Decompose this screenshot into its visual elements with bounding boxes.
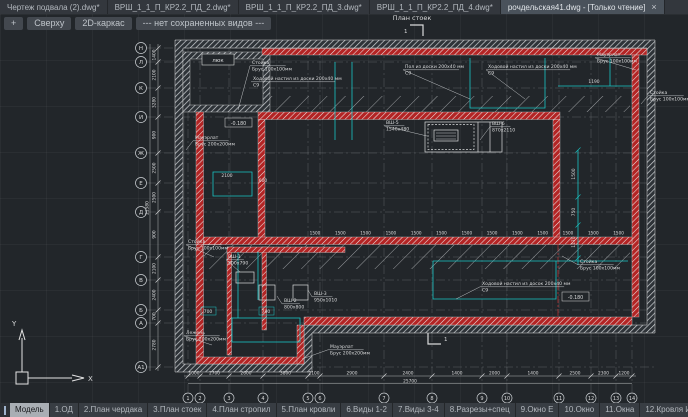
axis-bubble-label: 3 [227, 396, 230, 402]
axis-bubble-label: А [139, 321, 143, 327]
ucs-y-label: Y [11, 320, 17, 328]
stud-spacing-dim: 1500 [411, 231, 422, 236]
document-tab[interactable]: ВРШ_1_1_П_КР2.2_ПД_4.dwg* [370, 0, 501, 14]
annotation-text: Брус 100x100мм [188, 245, 228, 251]
annotation-text: Мауэрлат [330, 344, 354, 350]
axis-bubble-label: 1 [186, 396, 189, 402]
axis-dim-value: 3280 [152, 97, 158, 108]
shaft-detail-blocks [236, 122, 502, 300]
layout-tab[interactable]: 6.Виды 1-2 [341, 403, 393, 417]
axis-bubble-label: В [139, 278, 143, 284]
viewport-add-button[interactable]: + [4, 17, 23, 30]
annotation-text: Мауэрлат [597, 52, 621, 58]
axis-bubble-label: А1 [137, 365, 144, 371]
document-tab-bar: Чертеж подвала (2).dwg*ВРШ_1_1_П_КР2.2_П… [0, 0, 688, 14]
axis-bubble-label: Д [139, 210, 144, 216]
layout-tab[interactable]: 9.Окно Е [516, 403, 560, 417]
stud-spacing-dim: 1500 [386, 231, 397, 236]
detail-dim-value: 2100 [221, 173, 232, 179]
annotation-callout: ВШ-3950x1010 [308, 290, 337, 303]
layout-list-icon[interactable] [4, 406, 6, 415]
annotation-text: Брус 100x100мм [597, 58, 637, 64]
annotation-text: С9 [405, 70, 411, 76]
axis-dim-value: 3800 [280, 371, 291, 377]
annotation-text: Стойка [580, 258, 597, 265]
layout-tab[interactable]: 1.ОД [50, 403, 79, 417]
axis-bubble-label: Е [139, 181, 143, 187]
axis-dim-value: 2100 [152, 263, 158, 274]
axis-dim-value: 1000 [189, 371, 200, 377]
axis-bubble-label: 4 [261, 396, 264, 402]
axis-bubble-label: Б [139, 308, 143, 314]
annotation-text: Брус 100x100мм [650, 96, 688, 102]
annotation-text: 500x790 [228, 260, 248, 266]
axis-dim-value: 2100 [152, 69, 158, 80]
axis-dim-value: 2000 [489, 371, 500, 377]
stud-spacing-dim: 1500 [613, 231, 624, 236]
stud-spacing-dim: 1500 [537, 231, 548, 236]
detail-dim-value: 700 [204, 309, 213, 315]
annotation-text: С9 [488, 70, 494, 76]
stud-spacing-dim: 1500 [512, 231, 523, 236]
document-tab-active[interactable]: рочдельская41.dwg - [Только чтение]× [501, 0, 665, 14]
axis-bubble-label: 10 [504, 396, 510, 402]
floor-plan-drawing: люк -0.180 -0.180 План стоек 1 1 НЛКИЖЕД… [0, 14, 688, 403]
axis-total-dim: 25700 [403, 378, 417, 384]
layout-tab[interactable]: 8.Разрезы+спец [445, 403, 516, 417]
drawing-title: План стоек [393, 14, 432, 22]
axis-dim-value: 2900 [347, 371, 358, 377]
annotation-text: Брус 200x200мм [330, 350, 370, 356]
viewport-controls: + Сверху 2D-каркас --- нет сохраненных в… [4, 17, 271, 30]
axis-dim-value: 2780 [152, 339, 158, 350]
axis-dim-value: 2400 [152, 289, 158, 300]
level-mark-value: -0.180 [568, 295, 583, 301]
annotation-text: Стойка [650, 89, 667, 96]
axis-dim-value: 2500 [152, 192, 158, 203]
stud-spacing-dim: 1500 [461, 231, 472, 236]
detail-dim-value: 1500 [571, 168, 577, 179]
axis-bubble-label: 8 [430, 396, 433, 402]
annotation-leader [403, 70, 470, 99]
detail-dim-value: 700 [262, 309, 271, 315]
axis-total-dim: 21580 [145, 201, 151, 215]
annotation-text: С9 [253, 82, 259, 88]
annotation-text: С9 [482, 287, 488, 293]
stud-spacing-dim: 1500 [360, 231, 371, 236]
annotation-callout: ВШ-51540x480 [384, 120, 427, 136]
section-marks [410, 25, 441, 344]
annotation-text: 950x1010 [314, 297, 337, 303]
level-marks: -0.180 -0.180 [225, 118, 589, 301]
annotation-text: Пол из доски 200x40 мм [405, 64, 465, 70]
axis-dim-value: 1400 [152, 49, 158, 60]
layout-tab[interactable]: 7.Виды 3-4 [393, 403, 445, 417]
stud-spacing-dim: 1500 [563, 231, 574, 236]
annotation-leader [480, 127, 490, 140]
axis-dim-value: 2100 [309, 371, 320, 377]
axis-bubble-label: 11 [556, 396, 562, 402]
document-tab[interactable]: Чертеж подвала (2).dwg* [0, 0, 108, 14]
axis-dim-value: 2600 [241, 371, 252, 377]
detail-dim-value: 1170 [571, 236, 577, 247]
annotation-text: Лежень [186, 330, 205, 336]
stud-spacing-dim: 1500 [487, 231, 498, 236]
annotation-callout: Ходовой настил из доски 200x40 ммС9 [486, 63, 577, 99]
document-tab[interactable]: ВРШ_1_1_П_КР2.2_ПД_2.dwg* [108, 0, 239, 14]
axis-bubble-label: 5 [306, 396, 309, 402]
annotation-callout: МауэрлатБрус 200x200мм [186, 135, 235, 150]
axis-bubble-label: 12 [588, 396, 594, 402]
hatch-door-label: люк [212, 58, 224, 64]
axis-dim-value: 2500 [570, 371, 581, 377]
layout-tab[interactable]: 10.Окно [559, 403, 600, 417]
annotation-callout: Ходовой настил из досок 200x40 ммС9 [456, 280, 571, 299]
section-mark-number: 1 [404, 29, 408, 35]
annotation-callout: МауэрлатБрус 200x200мм [302, 344, 370, 359]
annotation-text: Брус 200x200мм [195, 141, 235, 147]
axis-dim-value: 1400 [452, 371, 463, 377]
axis-bubble-label: Ж [138, 151, 144, 157]
axis-bubble-label: 13 [613, 396, 619, 402]
view-direction-button[interactable]: Сверху [27, 17, 71, 30]
annotation-text: Ходовой настил из доски 200x40 мм [253, 75, 342, 82]
axis-dim-value: 1400 [528, 371, 539, 377]
annotation-text: ВШ-3 [314, 291, 327, 297]
annotation-callout: Пол из доски 200x40 ммС9 [403, 64, 470, 99]
annotation-text: Брус 200x200мм [186, 336, 226, 342]
annotation-leader [456, 287, 480, 299]
layout-tab-model[interactable]: Модель [10, 403, 50, 417]
stud-spacing-dim: 1500 [310, 231, 321, 236]
axis-bubble-label: 9 [480, 396, 483, 402]
annotation-text: Брус 100x100мм [252, 66, 292, 72]
stud-spacing-dim: 1500 [588, 231, 599, 236]
detail-dim-value: 600 [259, 178, 268, 184]
axis-dim-value: 2400 [403, 371, 414, 377]
axis-bubble-label: И [139, 115, 143, 121]
stud-spacing-dim: 1500 [436, 231, 447, 236]
annotation-leader [186, 141, 193, 150]
annotation-text: Стойка [188, 238, 205, 245]
axis-bubble-label: Л [139, 60, 143, 66]
layout-tab[interactable]: 11.Окна [600, 403, 640, 417]
document-tab[interactable]: ВРШ_1_1_П_КР2.2_ПД_3.dwg* [239, 0, 370, 14]
layout-tab[interactable]: 2.План чердака [79, 403, 148, 417]
annotation-text: Ходовой настил из доски 200x40 мм [488, 63, 577, 70]
ucs-x-label: X [88, 375, 93, 383]
visual-style-button[interactable]: 2D-каркас [75, 17, 131, 30]
axis-dim-value: 1200 [619, 371, 630, 377]
axis-bubble-label: 7 [382, 396, 385, 402]
annotation-text: ВШ-5 [386, 120, 399, 126]
annotation-text: ВШ-1 [228, 254, 241, 260]
saved-views-button[interactable]: --- нет сохраненных видов --- [136, 17, 272, 30]
layout-tab[interactable]: 12.Кровля И-М 1-3 [640, 403, 688, 417]
axis-dim-value: 700 [152, 312, 158, 320]
annotation-leader [308, 290, 312, 297]
annotation-text: 1540x480 [386, 126, 409, 132]
annotation-callout: ВШ-2800x800 [277, 296, 304, 310]
annotation-text: 800x800 [284, 304, 304, 310]
annotation-callout: ВШ-6870x2110 [480, 121, 515, 140]
close-tab-icon[interactable]: × [651, 3, 656, 12]
level-mark-value: -0.180 [231, 121, 246, 127]
axis-dim-value: 2700 [209, 371, 220, 377]
layout-tab-bar: Модель1.ОД2.План чердака3.План стоек4.Пл… [0, 403, 688, 417]
annotation-callout: ЛеженьБрус 200x200мм [184, 330, 226, 345]
layout-tab[interactable]: 3.План стоек [148, 403, 207, 417]
annotation-leader [277, 296, 282, 304]
annotation-text: ВШ-6 [492, 121, 505, 127]
axis-bubble-label: 2 [198, 396, 201, 402]
axis-dim-value: 900 [152, 230, 158, 238]
drawing-canvas[interactable]: + Сверху 2D-каркас --- нет сохраненных в… [0, 14, 688, 403]
annotation-text: Ходовой настил из досок 200x40 мм [482, 280, 571, 287]
annotation-text: ВШ-2 [284, 298, 297, 304]
annotation-text: Брус 100x100мм [580, 265, 620, 271]
layout-tab[interactable]: 5.План кровли [277, 403, 342, 417]
detail-dim-value: 750 [571, 208, 577, 217]
section-mark-number: 1 [444, 337, 448, 343]
axis-bubble-label: Н [139, 46, 143, 52]
annotation-text: 870x2110 [492, 127, 515, 133]
axis-dim-value: 900 [152, 131, 158, 139]
detail-dim-value: 1190 [588, 79, 599, 85]
cad-application-window: Чертеж подвала (2).dwg*ВРШ_1_1_П_КР2.2_П… [0, 0, 688, 417]
axis-bubble-label: К [139, 86, 143, 92]
axis-bubble-label: 14 [629, 396, 635, 402]
axis-dim-value: 2300 [598, 371, 609, 377]
stud-spacing-dim: 1500 [335, 231, 346, 236]
axis-dim-value: 2500 [152, 162, 158, 173]
annotation-text: Мауэрлат [195, 135, 219, 141]
annotation-text: Стойка [252, 59, 269, 66]
ucs-icon [16, 330, 84, 384]
layout-tab[interactable]: 4.План стропил [207, 403, 276, 417]
axis-bubble-label: 6 [318, 396, 321, 402]
